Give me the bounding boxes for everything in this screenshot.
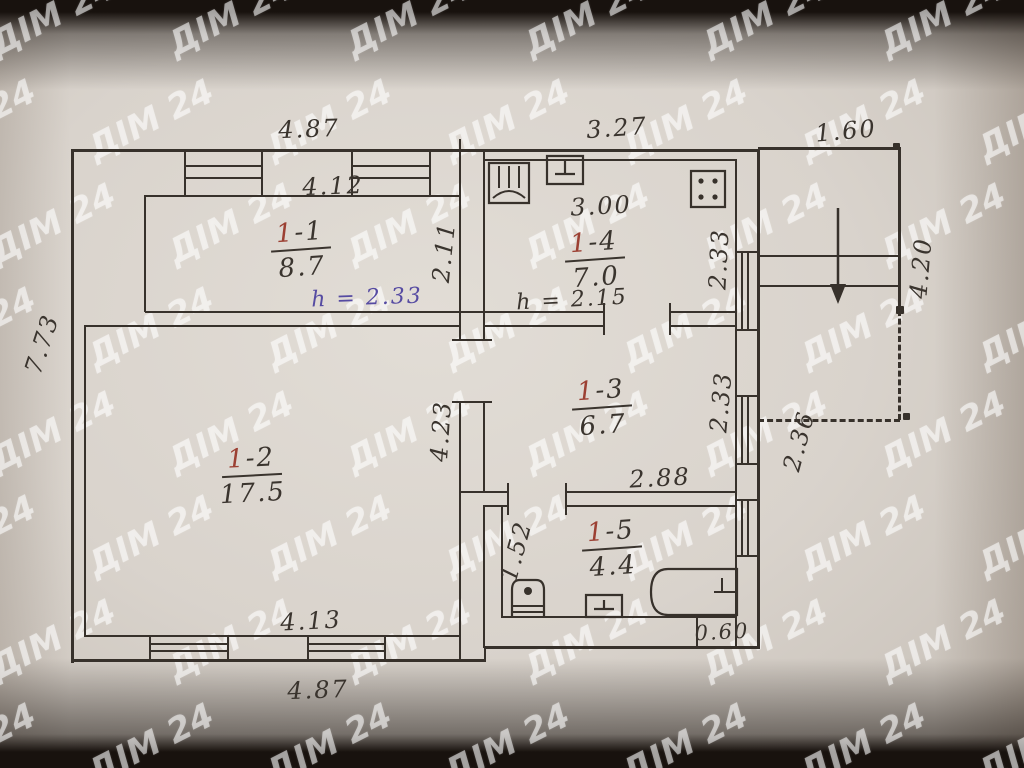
room-number: 1-1 [269, 215, 331, 252]
dim-room-1-3-width: 2.88 [629, 462, 692, 493]
window-jamb [429, 149, 431, 196]
watermark-text: ДІМ 24 [873, 175, 1012, 272]
watermark-text: ДІМ 24 [695, 0, 834, 65]
exterior-wall-top [72, 149, 760, 152]
room-area: 7.0 [565, 260, 627, 294]
exterior-wall-left [71, 149, 74, 663]
watermark-text: ДІМ 24 [161, 0, 300, 65]
door-opening-tick [669, 303, 671, 335]
dim-left-side: 7.73 [19, 310, 65, 377]
dim-room-1-3-depth: 2.33 [704, 370, 737, 434]
watermark-text: ДІМ 24 [615, 695, 754, 768]
watermark-text: ДІМ 24 [437, 695, 576, 768]
room-area: 8.7 [271, 250, 333, 284]
window-jamb [384, 635, 386, 661]
room-number: 1-2 [220, 442, 282, 478]
watermark-text: ДІМ 24 [0, 591, 123, 688]
porch-wall-top [758, 147, 900, 150]
room-label-1-5: 1-5 4.4 [580, 514, 644, 583]
watermark-text: ДІМ 24 [0, 0, 123, 65]
chimney-vent-icon [543, 150, 587, 188]
watermark-text: ДІМ 24 [161, 591, 300, 688]
watermark-text: ДІМ 24 [339, 383, 478, 480]
watermark-text: ДІМ 24 [971, 71, 1024, 168]
dim-room-1-2-depth: 4.23 [425, 399, 457, 462]
room-label-1-2: 1-2 17.5 [217, 442, 286, 510]
interior-wall-kitchen-bottom [670, 311, 736, 313]
window-jamb [149, 635, 151, 661]
wall-overshoot-tick [459, 139, 461, 149]
room-1-2-wall-bottom [84, 635, 460, 637]
watermark-text: ДІМ 24 [259, 695, 398, 768]
kitchen-sink-icon [486, 160, 532, 206]
interior-wall-mid [459, 402, 461, 660]
exterior-wall-jog [484, 647, 486, 661]
exterior-wall-right-outer [757, 149, 760, 649]
watermark-text: ДІМ 24 [339, 0, 478, 65]
watermark-text: ДІМ 24 [0, 487, 43, 584]
window-jamb [261, 149, 263, 196]
porch-outline-dashed-bottom [758, 419, 900, 422]
porch-outline-dashed-right [898, 310, 901, 420]
dim-bottom: 4.87 [287, 675, 349, 705]
interior-wall-1-5-top [565, 505, 736, 507]
window-glazing [184, 165, 263, 167]
room-area: 4.4 [582, 549, 644, 583]
corner-dot [893, 143, 900, 150]
dim-top-right: 1.60 [814, 114, 878, 147]
room-area: 6.7 [572, 408, 634, 442]
washbasin-icon [584, 593, 624, 619]
dim-room-1-2-width: 4.13 [280, 605, 343, 636]
interior-wall-1-3-bottom [459, 491, 508, 493]
watermark-text: ДІМ 24 [81, 279, 220, 376]
door-opening-tick [452, 339, 492, 341]
entrance-arrow-icon [824, 204, 852, 308]
watermark-text: ДІМ 24 [873, 383, 1012, 480]
watermark-text: ДІМ 24 [971, 695, 1024, 768]
room-1-2-wall-left [84, 325, 86, 636]
interior-wall-1-3-top [483, 325, 604, 327]
watermark-text: ДІМ 24 [971, 487, 1024, 584]
interior-wall-1-3-top [670, 325, 736, 327]
watermark-text: ДІМ 24 [873, 591, 1012, 688]
watermark-text: ДІМ 24 [0, 175, 123, 272]
window-glazing [747, 499, 749, 557]
toilet-icon [506, 576, 550, 620]
room-label-1-3: 1-3 6.7 [570, 373, 634, 442]
room-number: 1-4 [563, 225, 625, 262]
window-glazing [741, 395, 743, 465]
dim-top-left: 4.87 [278, 114, 340, 144]
stove-icon [688, 168, 728, 210]
watermark-text: ДІМ 24 [615, 279, 754, 376]
window-glazing [747, 251, 749, 331]
watermark-text: ДІМ 24 [81, 695, 220, 768]
door-opening-tick [565, 483, 567, 515]
bathtub-icon [646, 566, 740, 618]
window-jamb [307, 635, 309, 661]
window-glazing [149, 643, 229, 645]
dim-step: 0.60 [694, 619, 750, 646]
dim-porch-lower: 2.36 [778, 408, 821, 475]
dim-room-1-4-width: 3.00 [570, 190, 633, 221]
watermark-text: ДІМ 24 [0, 383, 123, 480]
window-glazing [351, 165, 431, 167]
window-jamb [184, 149, 186, 196]
ceiling-height-note-1-1: h = 2.33 [311, 284, 423, 313]
dim-porch-height: 4.20 [904, 236, 937, 300]
porch-wall-right [898, 147, 901, 310]
window-glazing [149, 650, 229, 652]
corner-dot [896, 306, 904, 314]
exterior-wall-bottom-right [484, 646, 760, 649]
watermark-text: ДІМ 24 [971, 279, 1024, 376]
dim-room-1-1-depth: 2.11 [427, 220, 461, 284]
watermark-text: ДІМ 24 [873, 0, 1012, 65]
interior-wall-mid [483, 402, 485, 492]
watermark-text: ДІМ 24 [0, 71, 43, 168]
room-label-1-4: 1-4 7.0 [563, 225, 627, 294]
room-area: 17.5 [219, 477, 286, 510]
watermark-text: ДІМ 24 [81, 487, 220, 584]
watermark-text: ДІМ 24 [339, 591, 478, 688]
watermark-text: ДІМ 24 [793, 695, 932, 768]
room-1-1-wall-left [144, 195, 146, 312]
window-glazing [307, 643, 386, 645]
watermark-text: ДІМ 24 [0, 695, 43, 768]
interior-wall-1-1-bottom [145, 311, 460, 313]
room-number: 1-5 [580, 514, 642, 551]
interior-wall-1-5-top [483, 505, 508, 507]
interior-wall-mid [483, 506, 485, 648]
interior-wall-1-2-top [84, 325, 460, 327]
floor-plan-photo: ДІМ 24ДІМ 24ДІМ 24ДІМ 24ДІМ 24ДІМ 24ДІМ … [0, 0, 1024, 768]
door-opening-tick [452, 401, 492, 403]
room-number: 1-3 [570, 373, 632, 410]
dim-top-mid: 3.27 [585, 112, 648, 144]
window-glazing [741, 499, 743, 557]
dim-room-1-1-width: 4.12 [302, 171, 364, 201]
watermark-text: ДІМ 24 [517, 0, 656, 65]
window-jamb [227, 635, 229, 661]
dim-room-1-4-depth: 2.33 [703, 228, 734, 291]
room-label-1-1: 1-1 8.7 [269, 215, 333, 284]
window-glazing [747, 395, 749, 465]
watermark-text: ДІМ 24 [81, 71, 220, 168]
watermark-text: ДІМ 24 [793, 487, 932, 584]
corner-dot [903, 413, 910, 420]
door-opening-tick [507, 483, 509, 515]
window-glazing [307, 650, 386, 652]
window-glazing [184, 177, 263, 179]
window-glazing [741, 251, 743, 331]
exterior-wall-bottom-left [71, 659, 486, 662]
